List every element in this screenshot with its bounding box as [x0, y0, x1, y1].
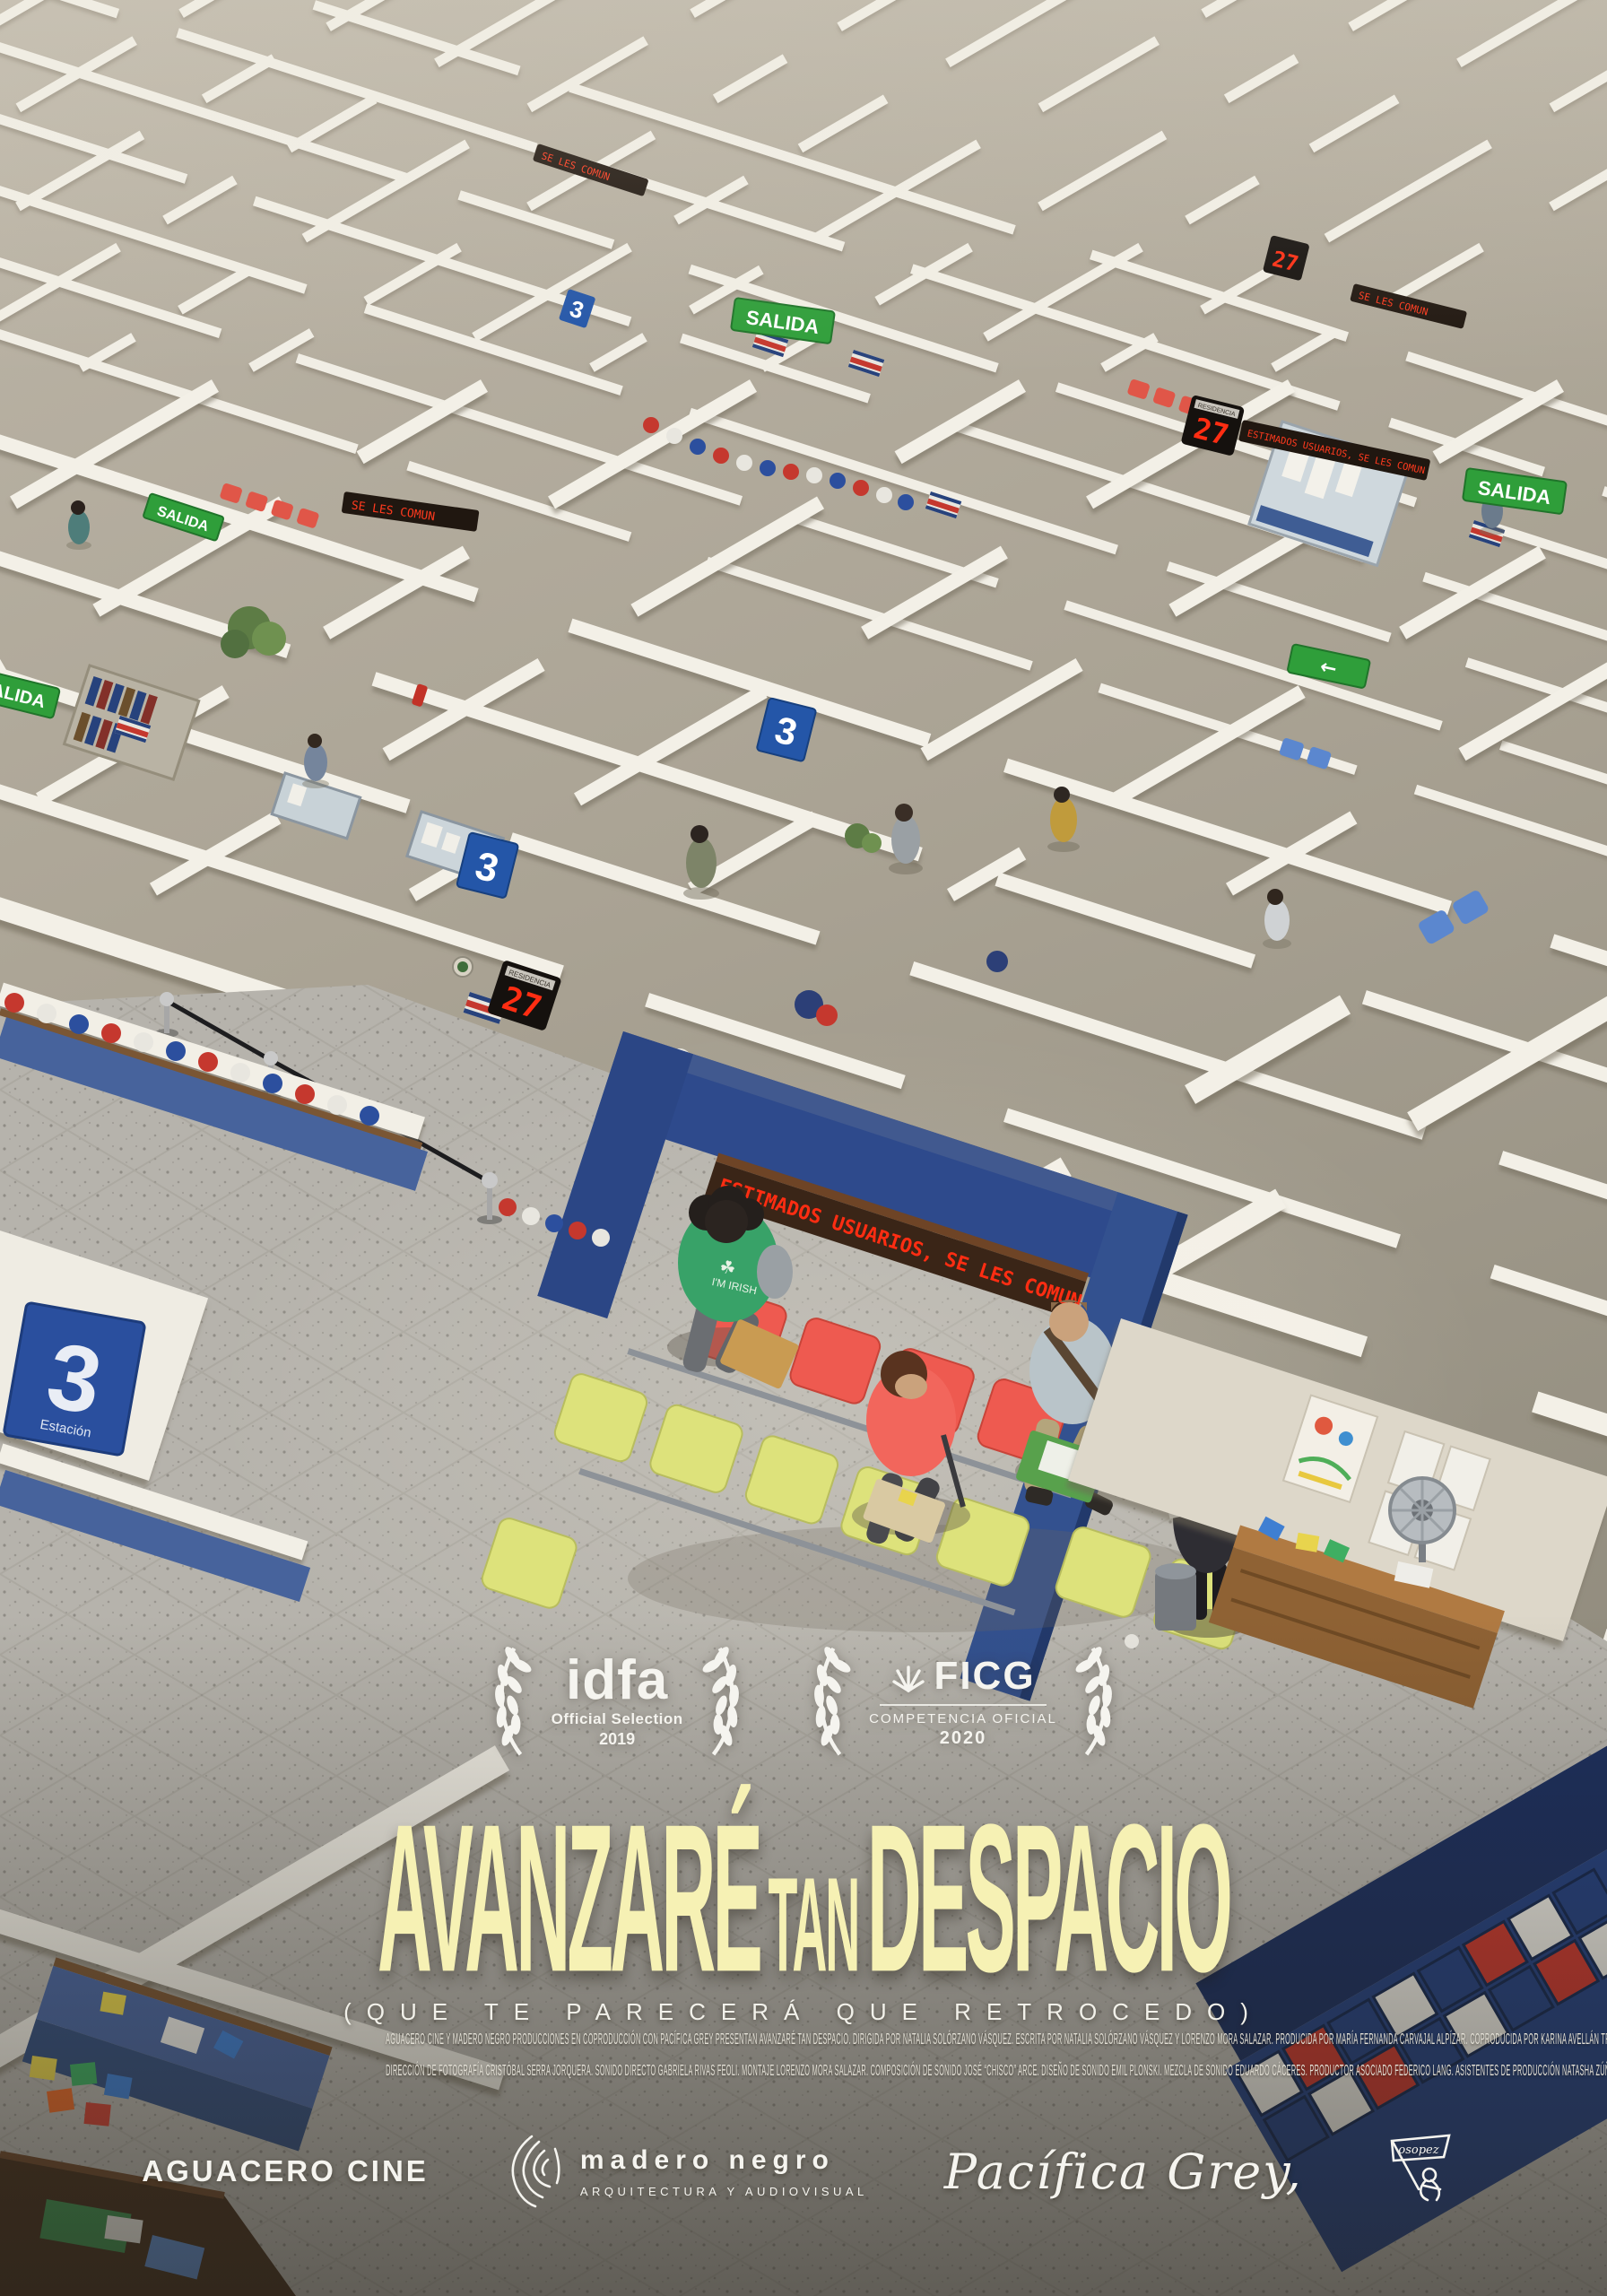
madero-negro-name: madero negro: [580, 2145, 868, 2176]
laurel-year: 2019: [550, 1730, 684, 1749]
laurel-selection-label: COMPETENCIA OFICIAL: [869, 1711, 1057, 1726]
madero-negro-subtitle: ARQUITECTURA Y AUDIOVISUAL: [580, 2185, 868, 2198]
laurel-selection-label: Official Selection: [550, 1710, 684, 1728]
madero-negro-logo: madero negro ARQUITECTURA Y AUDIOVISUAL: [505, 2133, 868, 2210]
title-word-despacio: DESPACIO: [867, 1781, 1229, 2016]
laurel-branch-icon: [489, 1634, 544, 1769]
osopez-flag-text: osopez: [1398, 2144, 1438, 2157]
laurel-branch-icon: [690, 1634, 745, 1769]
credit-block: AGUACERO CINE Y MADERO NEGRO PRODUCCIONE…: [0, 2023, 1607, 2086]
pacifica-grey-logo: Pacífica Grey,: [944, 2144, 1303, 2200]
laurel-year: 2020: [869, 1728, 1057, 1749]
title-word-avanzare: AVANZARÉ: [378, 1781, 760, 2016]
festival-laurels: idfa Official Selection 2019 FICG COMPET…: [0, 1634, 1607, 1769]
movie-poster: SALIDA SALIDA SALIDA SALIDA ← 3 3: [0, 0, 1607, 2296]
production-logos: AGUACERO CINE madero negro ARQUITECTURA …: [0, 2133, 1607, 2210]
film-title: AVANZARÉ TAN DESPACIO: [378, 1778, 1229, 2019]
title-word-tan: TAN: [769, 1849, 859, 1999]
laurel-branch-icon: [808, 1634, 864, 1769]
laurel-ficg: FICG COMPETENCIA OFICIAL 2020: [808, 1634, 1118, 1769]
topographic-lines-icon: [505, 2133, 564, 2210]
idfa-logo: idfa: [550, 1655, 684, 1707]
osopez-logo-icon: osopez: [1379, 2134, 1465, 2209]
laurel-idfa: idfa Official Selection 2019: [489, 1634, 745, 1769]
credit-line-2: DIRECCIÓN DE FOTOGRAFÍA CRISTÓBAL SERRA …: [386, 2051, 1221, 2091]
aguacero-cine-logo: AGUACERO CINE: [142, 2154, 429, 2188]
ficg-logo: FICG: [934, 1654, 1035, 1699]
agave-icon: [890, 1658, 926, 1694]
laurel-branch-icon: [1063, 1634, 1118, 1769]
top-haze: [0, 0, 1607, 377]
divider: [880, 1704, 1047, 1706]
